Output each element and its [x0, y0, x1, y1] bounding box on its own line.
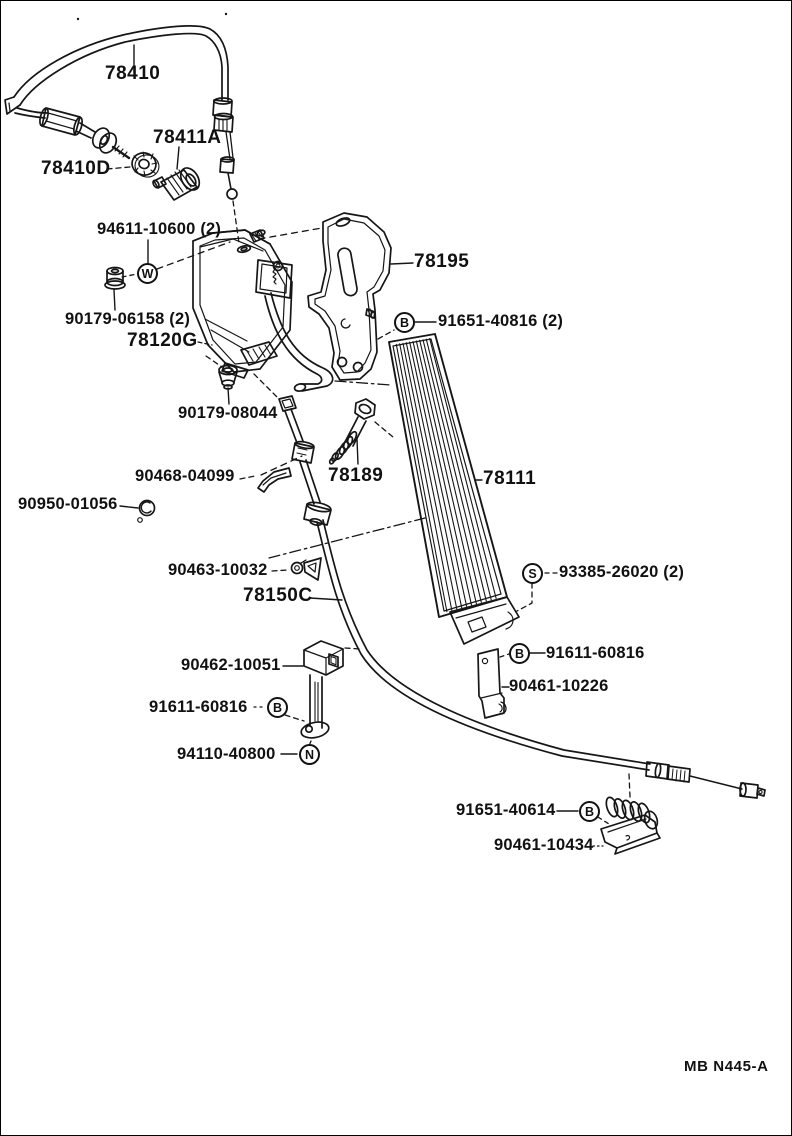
part-label-94611-10600: 94611-10600 (2): [97, 221, 221, 238]
part-label-90462-10051: 90462-10051: [181, 657, 280, 674]
symbol-letter: B: [515, 647, 524, 661]
symbol-letter: B: [585, 805, 594, 819]
spring-clamp-90461-10434-drawing: [601, 796, 660, 854]
pedal-ribs: [396, 339, 496, 612]
pedal-78111-drawing: [389, 334, 519, 644]
leader-lines: [114, 45, 578, 811]
nut-symbol-n-94110-40800: N: [299, 744, 320, 765]
clip-90468-drawing: [258, 468, 291, 492]
part-label-78189: 78189: [328, 466, 383, 485]
part-label-91651-40614: 91651-40614: [456, 802, 555, 819]
part-label-78411a: 78411A: [153, 128, 222, 147]
screw-symbol-s-93385-26020: S: [522, 563, 543, 584]
symbol-letter: W: [142, 267, 154, 281]
print-specks: [77, 13, 227, 20]
part-label-78111: 78111: [483, 469, 536, 488]
part-label-90468-04099: 90468-04099: [135, 468, 234, 485]
rod-78150c-drawing: [279, 396, 650, 770]
bolt-symbol-b-91651-40614: B: [579, 801, 600, 822]
grommet-90950-drawing: [138, 501, 155, 523]
drawing-code: MB N445-A: [684, 1058, 769, 1075]
bolt-78189-drawing: [329, 399, 375, 465]
bolt-symbol-b-91611-60816-right: B: [509, 643, 530, 664]
symbol-letter: S: [528, 567, 536, 581]
part-label-91611-60816-right: 91611-60816: [546, 645, 645, 662]
cable-78410-drawing: [5, 26, 237, 199]
adjuster-78411a-drawing: [152, 165, 203, 200]
nut-90179-06158-drawing: [105, 268, 125, 290]
part-label-94110-40800: 94110-40800: [177, 746, 276, 763]
bolt-symbol-b-91611-60816-left: B: [267, 697, 288, 718]
pedal-arm-drawing: [265, 293, 333, 392]
part-label-90461-10434: 90461-10434: [494, 837, 593, 854]
part-label-90950-01056: 90950-01056: [18, 496, 117, 513]
clip-90463-drawing: [292, 558, 322, 580]
part-label-78150c: 78150C: [243, 586, 313, 605]
part-label-93385-26020: 93385-26020 (2): [559, 564, 684, 581]
cable-end-bottom-drawing: [646, 762, 765, 798]
bolt-symbol-b-91651-40816: B: [394, 312, 415, 333]
part-label-78195: 78195: [414, 252, 469, 271]
bracket-78120g-drawing: [193, 229, 292, 378]
part-label-78120g: 78120G: [127, 331, 198, 350]
part-label-90179-08044: 90179-08044: [178, 405, 277, 422]
plug-90179-08044-drawing: [219, 366, 237, 390]
washer-symbol-w: W: [137, 263, 158, 284]
part-label-90463-10032: 90463-10032: [168, 562, 267, 579]
parts-diagram-page: 78410 78411A 78410D 94611-10600 (2) 7819…: [0, 0, 792, 1136]
part-label-91611-60816-left: 91611-60816: [149, 699, 248, 716]
symbol-letter: B: [273, 701, 282, 715]
part-label-78410: 78410: [105, 64, 160, 83]
part-label-90461-10226: 90461-10226: [509, 678, 608, 695]
symbol-letter: B: [400, 316, 409, 330]
symbol-letter: N: [305, 748, 314, 762]
part-label-90179-06158: 90179-06158 (2): [65, 311, 190, 328]
washer-78410d-drawing: [130, 150, 162, 179]
part-label-91651-40816: 91651-40816 (2): [438, 313, 563, 330]
part-label-78410d: 78410D: [41, 159, 111, 178]
bracket-90461-10226-drawing: [478, 649, 506, 718]
bracket-90462-drawing: [300, 641, 343, 740]
plate-78195-drawing: [308, 213, 391, 380]
